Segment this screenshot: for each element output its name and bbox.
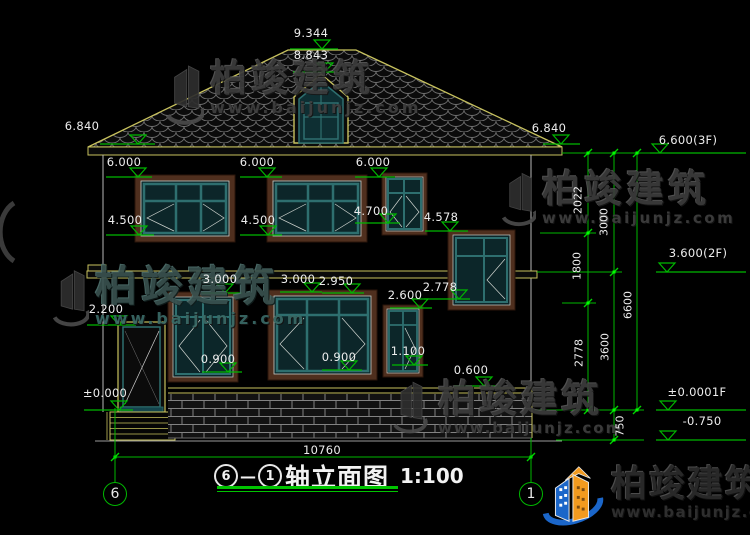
watermark-url: www.baijunjz.com <box>95 309 306 328</box>
dim-label-750: 750 <box>614 416 627 437</box>
level-label-4500-b: 4.500 <box>241 213 275 227</box>
level-label-3000-b: 3.000 <box>281 272 315 286</box>
level-label-1f: ±0.0001F <box>668 385 727 399</box>
brand-name: 柏竣建筑 <box>611 467 750 503</box>
dim-label-6600: 6600 <box>622 291 635 319</box>
dim-label-3000: 3000 <box>598 208 611 236</box>
window-2f-left <box>135 175 235 242</box>
dim-label-3600: 3600 <box>599 333 612 361</box>
dim-label-1800: 1800 <box>571 252 584 280</box>
entry-steps <box>107 412 175 440</box>
level-label-0900-a: 0.900 <box>201 352 235 366</box>
brand-url: www.baijunjz.com <box>611 503 750 521</box>
window-1f-small <box>383 305 423 377</box>
axis-bubble-6: 6 <box>103 482 127 506</box>
title-scale: 1:100 <box>400 464 464 488</box>
level-label-2f: 3.600(2F) <box>669 246 728 260</box>
level-label-eave-right: 6.840 <box>532 121 566 135</box>
watermark-logo-icon <box>502 170 536 234</box>
window-2f-middle <box>267 175 367 242</box>
level-label-1100: 1.100 <box>391 344 425 358</box>
level-label-6000-a: 6.000 <box>107 155 141 169</box>
title-underline-thick <box>217 486 398 489</box>
eave-fascia-band <box>88 147 562 155</box>
level-label-4700: 4.700 <box>354 204 388 218</box>
level-label-ridge: 9.344 <box>294 26 328 40</box>
elevation-drawing-canvas: 柏竣建筑 www.baijunjz.com 柏竣建筑 www.baijunjz.… <box>0 0 750 535</box>
title-axis-end-bubble: 1 <box>258 464 282 488</box>
watermark-top: 柏竣建筑 www.baijunjz.com <box>166 60 421 136</box>
dim-label-2778: 2778 <box>573 339 586 367</box>
level-label-4578: 4.578 <box>424 210 458 224</box>
axis-bubble-1: 1 <box>519 482 543 506</box>
level-label-6000-c: 6.000 <box>356 155 390 169</box>
level-label-2778: 2.778 <box>423 280 457 294</box>
watermark-brand: 柏竣建筑 <box>210 60 421 98</box>
watermark-url: www.baijunjz.com <box>438 419 623 437</box>
watermark-brand: 柏竣建筑 <box>438 380 623 419</box>
level-label-0900-b: 0.900 <box>322 350 356 364</box>
dim-label-10760: 10760 <box>303 443 341 457</box>
watermark-brand: 柏竣建筑 <box>95 266 306 309</box>
watermark-logo-icon <box>53 266 89 336</box>
level-label-2950: 2.950 <box>319 274 353 288</box>
brand-footer: 柏竣建筑 www.baijunjz.com <box>536 458 750 530</box>
level-label-3000-a: 3.000 <box>203 272 237 286</box>
dim-label-2022: 2022 <box>572 186 585 214</box>
level-label-dormer: 8.843 <box>294 48 328 62</box>
brand-logo-icon <box>536 458 606 530</box>
level-label-minus750: -0.750 <box>683 414 722 428</box>
window-2f-small <box>382 173 427 235</box>
level-label-0000: ±0.000 <box>83 386 127 400</box>
level-label-3f: 6.600(3F) <box>659 133 718 147</box>
title-dash: — <box>240 467 256 486</box>
level-label-2200: 2.200 <box>89 302 123 316</box>
watermark-right: 柏竣建筑 www.baijunjz.com <box>502 170 735 234</box>
level-label-4500-a: 4.500 <box>108 213 142 227</box>
level-label-eave-left: 6.840 <box>65 119 99 133</box>
level-label-2600: 2.600 <box>388 288 422 302</box>
title-underline-thin <box>217 491 398 492</box>
watermark-left: 柏竣建筑 www.baijunjz.com <box>53 266 306 336</box>
watermark-url: www.baijunjz.com <box>210 98 421 117</box>
watermark-logo-icon <box>166 60 204 136</box>
level-label-0600: 0.600 <box>454 363 488 377</box>
watermark-bottom: 柏竣建筑 www.baijunjz.com <box>388 380 623 440</box>
title-axis-start-bubble: 6 <box>214 464 238 488</box>
watermark-arc-fragment <box>0 203 14 261</box>
level-label-6000-b: 6.000 <box>240 155 274 169</box>
watermark-logo-icon <box>388 380 432 440</box>
